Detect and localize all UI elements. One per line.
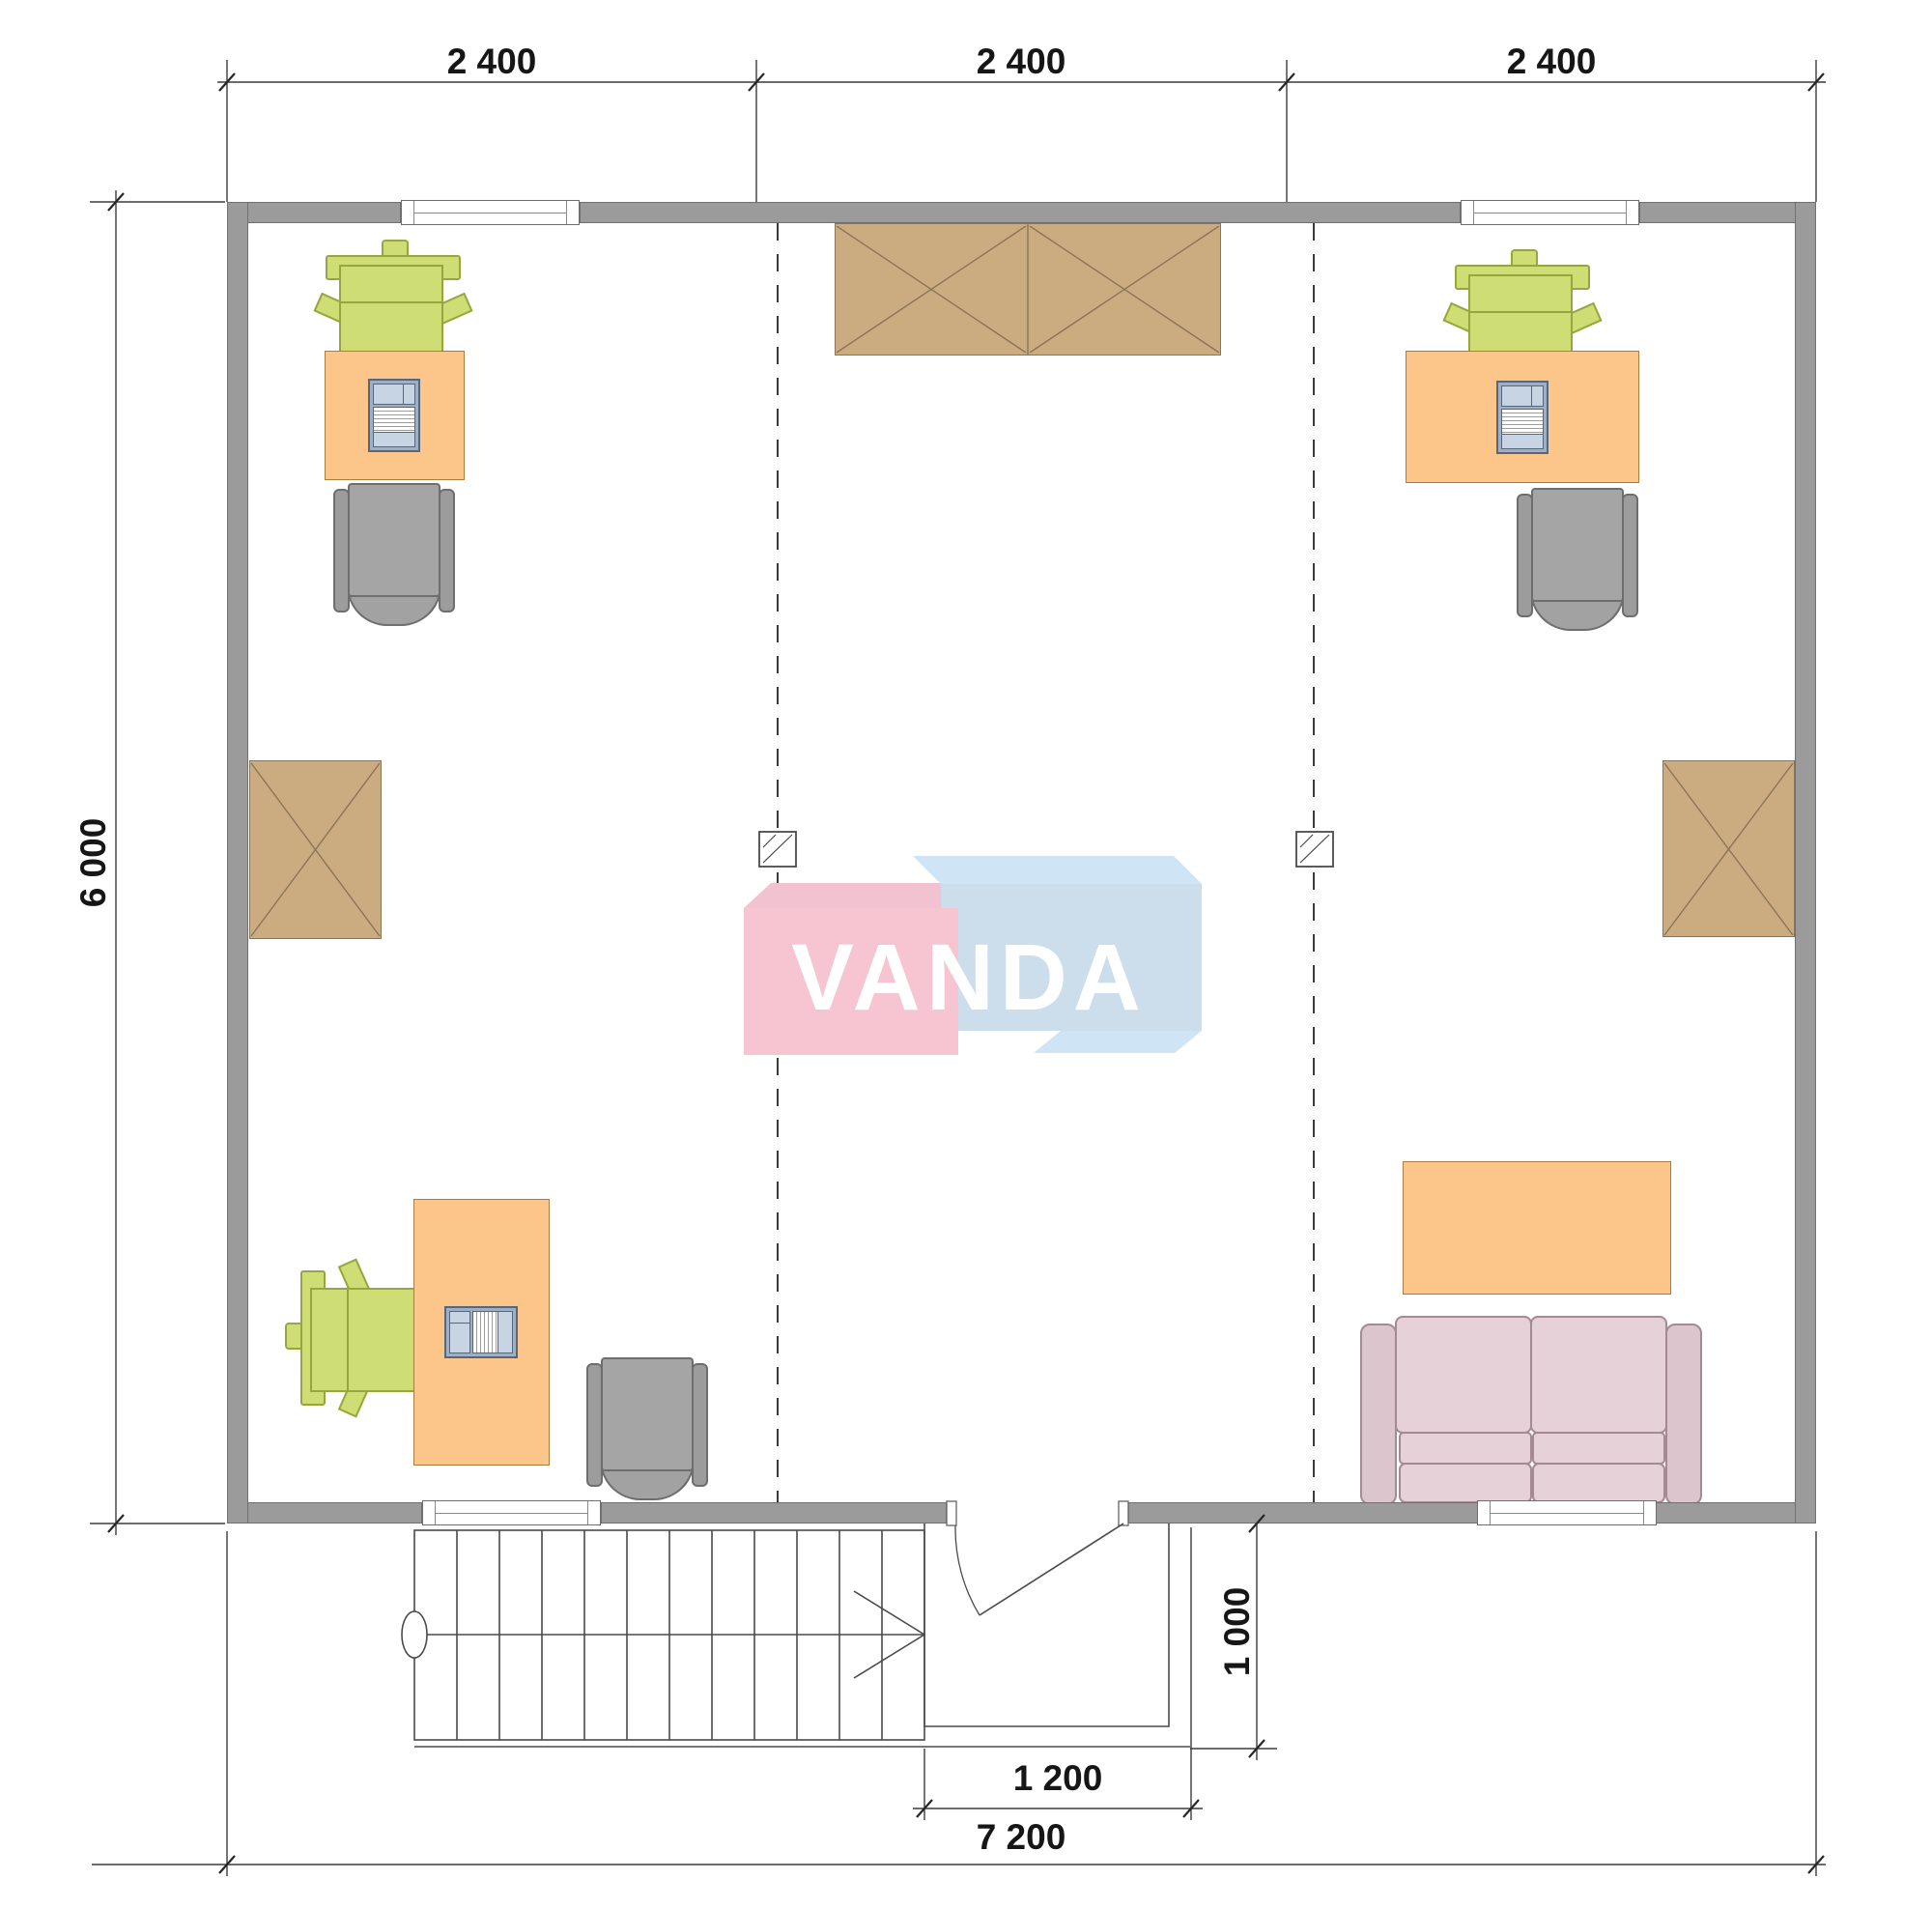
chair-seat bbox=[601, 1357, 694, 1471]
chair-seat bbox=[1531, 488, 1624, 602]
sofa bbox=[1360, 1316, 1702, 1505]
laptop-screen bbox=[449, 1323, 470, 1353]
door-jamb bbox=[1119, 1501, 1128, 1525]
laptop-touchpad bbox=[373, 432, 415, 447]
sofa-armrest-left bbox=[1360, 1324, 1397, 1505]
task-chair-top-right bbox=[1517, 488, 1638, 633]
storage-box-top-double bbox=[835, 223, 1221, 356]
window-bottom-left bbox=[422, 1500, 601, 1525]
laptop-bottom-left bbox=[444, 1306, 518, 1358]
laptop-keyboard bbox=[373, 407, 415, 434]
dim-porch-depth: 1 000 bbox=[1217, 1554, 1258, 1709]
sofa-front-cushion bbox=[1399, 1463, 1532, 1503]
window-frame-end bbox=[1490, 1501, 1491, 1524]
wall-top-segment-2 bbox=[580, 202, 1461, 223]
dim-entry-width: 1 200 bbox=[980, 1758, 1135, 1799]
wall-bottom-segment-3 bbox=[1128, 1502, 1816, 1524]
window-frame-end bbox=[1643, 1501, 1644, 1524]
sofa-front-cushion bbox=[1532, 1463, 1665, 1503]
entry-porch bbox=[924, 1524, 1169, 1726]
stairs-arrow-head bbox=[854, 1591, 924, 1635]
window-glass-line bbox=[1490, 1513, 1644, 1514]
window-frame-end bbox=[566, 201, 567, 224]
laptop-hinge bbox=[449, 1311, 470, 1324]
window-glass-line bbox=[1473, 213, 1627, 214]
laptop-keyboard bbox=[1501, 409, 1544, 436]
entry-door bbox=[947, 1501, 1128, 1615]
dim-top-bay-1: 2 400 bbox=[414, 42, 569, 82]
dim-top-bay-2: 2 400 bbox=[944, 42, 1098, 82]
wall-right bbox=[1795, 202, 1816, 1524]
task-chair-top-left bbox=[333, 483, 455, 628]
stairs-start-circle bbox=[402, 1611, 427, 1658]
office-chair-bottom-left bbox=[285, 1270, 430, 1406]
watermark-blue-bottom-bevel bbox=[1034, 1031, 1202, 1053]
laptop-keyboard bbox=[472, 1311, 499, 1353]
door-swing-arc bbox=[955, 1525, 980, 1615]
window-glass-line bbox=[413, 213, 567, 214]
chair-armrest bbox=[1622, 494, 1638, 617]
stairs-outline bbox=[414, 1530, 924, 1740]
window-top-left bbox=[401, 200, 580, 225]
window-frame-end bbox=[1626, 201, 1627, 224]
laptop-touchpad bbox=[497, 1311, 513, 1353]
window-bottom-right bbox=[1477, 1500, 1657, 1525]
wall-bottom-segment-1 bbox=[227, 1502, 422, 1524]
laptop-top-right bbox=[1496, 381, 1548, 454]
wall-top-segment-3 bbox=[1639, 202, 1816, 223]
dim-top-bay-3: 2 400 bbox=[1474, 42, 1629, 82]
window-frame-end bbox=[413, 201, 414, 224]
laptop-hinge bbox=[403, 384, 415, 405]
window-frame-end bbox=[435, 1501, 436, 1524]
wall-top-segment-1 bbox=[227, 202, 401, 223]
sofa-seat-cushion bbox=[1532, 1432, 1665, 1465]
window-glass-line bbox=[435, 1513, 588, 1514]
chair-armrest bbox=[692, 1363, 708, 1487]
stairs bbox=[402, 1530, 1190, 1747]
window-top-right bbox=[1461, 200, 1639, 225]
sofa-armrest-right bbox=[1665, 1324, 1702, 1505]
watermark-logo: VANDA bbox=[724, 840, 1207, 1068]
door-jamb bbox=[947, 1501, 956, 1525]
partition-grid-line-right bbox=[1313, 223, 1315, 1502]
laptop-top-left bbox=[368, 379, 420, 452]
storage-box-left bbox=[249, 760, 382, 939]
window-frame-end bbox=[587, 1501, 588, 1524]
watermark-text: VANDA bbox=[791, 925, 1147, 1030]
stairs-arrow-head bbox=[854, 1635, 924, 1678]
laptop-screen bbox=[373, 384, 404, 405]
chair-armrest bbox=[439, 489, 455, 612]
wall-left bbox=[227, 202, 248, 1524]
sofa-back-cushion bbox=[1530, 1316, 1667, 1434]
coffee-table bbox=[1403, 1161, 1671, 1295]
window-frame-end bbox=[1473, 201, 1474, 224]
dim-total-width: 7 200 bbox=[944, 1817, 1098, 1858]
chair-seat bbox=[348, 483, 440, 597]
floor-plan-canvas: 2 400 2 400 2 400 6 000 7 200 1 200 1 00… bbox=[0, 0, 1932, 1908]
sofa-seat-cushion bbox=[1399, 1432, 1532, 1465]
sofa-back-cushion bbox=[1395, 1316, 1532, 1434]
laptop-hinge bbox=[1531, 385, 1544, 407]
laptop-touchpad bbox=[1501, 434, 1544, 449]
storage-box-right bbox=[1662, 760, 1795, 937]
laptop-screen bbox=[1501, 385, 1532, 407]
chair-seat bbox=[310, 1288, 426, 1392]
dim-left-height: 6 000 bbox=[73, 785, 114, 940]
door-leaf bbox=[980, 1524, 1123, 1615]
wall-bottom-segment-2 bbox=[601, 1502, 947, 1524]
watermark-blue-top-face bbox=[913, 856, 1202, 884]
task-chair-bottom-left bbox=[586, 1357, 708, 1502]
column-symbol-right bbox=[1296, 832, 1333, 867]
